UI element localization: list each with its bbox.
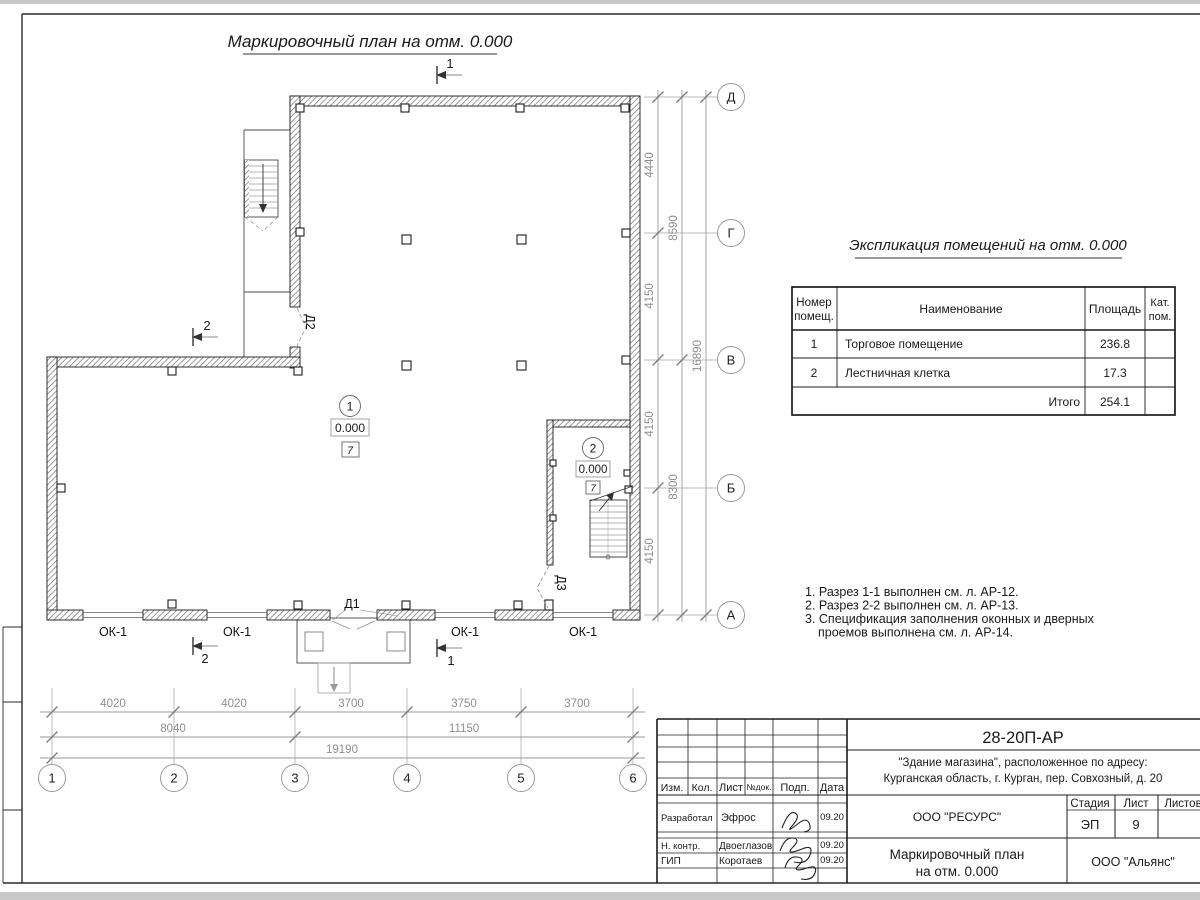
section-mark-1-bottom: 1: [436, 639, 462, 668]
interior-stair: [590, 486, 633, 559]
axis-4: 4: [403, 771, 410, 786]
explication-table: Экспликация помещений на отм. 0.000 Номе…: [792, 237, 1175, 415]
note-3: 3. Спецификация заполнения оконных и две…: [805, 612, 1095, 626]
col-kol: Кол.: [692, 782, 713, 794]
notes: 1. Разрез 1-1 выполнен см. л. АР-12. 2. …: [805, 585, 1095, 640]
name-gip: Коротаев: [719, 856, 762, 867]
dim-b3-1: 19190: [326, 744, 358, 756]
side-stamp-cells: [3, 627, 22, 883]
section-mark-1-top: 1: [436, 56, 462, 84]
dim-b1-1: 4020: [100, 698, 126, 710]
col-num-header: Номер: [796, 297, 831, 309]
section-mark-2-left: 2: [192, 318, 218, 346]
col-ndok: №док.: [747, 782, 772, 792]
axis-bubbles-right: Д Г В Б А: [718, 84, 745, 629]
plan-title-group: Маркировочный план на отм. 0.000: [228, 32, 513, 54]
col-list: Лист: [719, 782, 743, 794]
sheet-name-2: на отм. 0.000: [916, 864, 999, 879]
client-org: ООО "Альянс": [1091, 855, 1175, 869]
dim-r1-2: 4150: [644, 283, 656, 309]
floor-plan: Д1 Д2 Д3 ОК-1 ОК-1 ОК-1 ОК-1 1 0.000 7 2…: [47, 56, 640, 693]
dim-r2-2: 8300: [668, 474, 680, 500]
row-name: Торговое помещение: [845, 337, 963, 351]
door-label-d2: Д2: [303, 314, 317, 329]
window-label: ОК-1: [569, 625, 597, 639]
stage-label: Стадия: [1070, 798, 1109, 810]
axis-b: Б: [727, 481, 736, 496]
window-label: ОК-1: [451, 625, 479, 639]
row-num: 2: [811, 366, 818, 380]
section-label-1: 1: [447, 653, 454, 668]
room1-elevation: 0.000: [335, 421, 365, 435]
stage-value: ЭП: [1081, 817, 1100, 832]
door-labels: Д1 Д2 Д3: [303, 314, 568, 611]
entrance-porch: [297, 618, 410, 693]
room1-floor-type: 7: [347, 445, 354, 457]
total-label: Итого: [1049, 395, 1081, 409]
project-address-2: Курганская область, г. Курган, пер. Совх…: [884, 773, 1163, 785]
note-3-cont: проемов выполнена см. л. АР-14.: [818, 626, 1013, 640]
explication-title: Экспликация помещений на отм. 0.000: [849, 237, 1127, 254]
col-izm: Изм.: [661, 782, 684, 794]
dim-b1-3: 3700: [338, 698, 364, 710]
section-label-1: 1: [446, 56, 453, 71]
door-swings: [297, 308, 549, 629]
axis-a: А: [727, 608, 736, 623]
axis-g: Г: [727, 226, 734, 241]
dim-r1-3: 4150: [644, 411, 656, 437]
explication-total-row: Итого 254.1: [1049, 395, 1131, 409]
room1-number: 1: [347, 400, 354, 414]
dim-b2-1: 8040: [160, 723, 186, 735]
date-gip: 09.20: [820, 855, 844, 866]
date-developed: 09.20: [820, 812, 844, 823]
page-title: Маркировочный план на отм. 0.000: [228, 32, 513, 51]
sheets-label: Листов: [1164, 798, 1200, 810]
doc-number: 28-20П-АР: [982, 729, 1064, 747]
dim-b1-2: 4020: [221, 698, 247, 710]
row-area: 236.8: [1100, 337, 1130, 351]
room-markers: 1 0.000 7 2 0.000 7: [331, 396, 610, 495]
room2-elevation: 0.000: [579, 464, 608, 476]
dim-b2-2: 11150: [449, 723, 479, 735]
note-2: 2. Разрез 2-2 выполнен см. л. АР-13.: [805, 599, 1019, 613]
role-gip: ГИП: [661, 856, 681, 867]
axis-2: 2: [170, 771, 177, 786]
drawing-canvas: Маркировочный план на отм. 0.000: [0, 0, 1200, 900]
door-label-d1: Д1: [344, 597, 359, 611]
sheet-value: 9: [1132, 817, 1139, 832]
entrance-arrow-icon: [330, 684, 338, 692]
dim-r1-4: 4150: [644, 538, 656, 564]
axis-v: В: [727, 353, 736, 368]
title-block-right: 28-20П-АР "Здание магазина", расположенн…: [884, 729, 1200, 879]
axis-bubbles-bottom: 1 2 3 4 5 6: [39, 765, 647, 792]
col-cat-header2: пом.: [1149, 311, 1172, 323]
project-address-1: "Здание магазина", расположенное по адре…: [898, 757, 1147, 769]
walls: [47, 96, 640, 620]
dim-r2-1: 8590: [668, 215, 680, 241]
role-ncontrol: Н. контр.: [661, 841, 700, 852]
name-developed: Эфрос: [721, 812, 756, 824]
col-name-header: Наименование: [919, 302, 1003, 316]
designer-org: ООО "РЕСУРС": [913, 810, 1001, 824]
room2-number: 2: [590, 442, 597, 456]
section-label-2: 2: [201, 651, 208, 666]
section-label-2: 2: [203, 318, 210, 333]
dim-b1-4: 3750: [451, 698, 477, 710]
title-block-signature-rows: Разработал Эфрос 09.20 Н. контр. Двоегла…: [661, 812, 844, 879]
date-ncontrol: 09.20: [820, 840, 844, 851]
col-area-header: Площадь: [1089, 302, 1141, 316]
dim-r3-1: 16890: [692, 340, 704, 372]
window-label: ОК-1: [99, 625, 127, 639]
title-block: Изм. Кол. Лист №док. Подп. Дата Разработ…: [657, 719, 1200, 883]
dimensions-right: 4440 4150 4150 4150 8590 8300 16890 Д Г …: [644, 84, 745, 629]
row-num: 1: [811, 337, 818, 351]
drawing-sheet: Маркировочный план на отм. 0.000: [0, 0, 1200, 900]
total-area: 254.1: [1100, 395, 1130, 409]
sheet-label: Лист: [1124, 798, 1150, 810]
room2-floor-type: 7: [590, 484, 596, 495]
row-name: Лестничная клетка: [845, 366, 950, 380]
col-cat-header: Кат.: [1150, 297, 1169, 309]
col-podp: Подп.: [780, 782, 809, 794]
role-developed: Разработал: [661, 813, 713, 824]
note-1: 1. Разрез 1-1 выполнен см. л. АР-12.: [805, 585, 1019, 599]
axis-6: 6: [629, 771, 636, 786]
axis-1: 1: [48, 771, 55, 786]
col-data: Дата: [820, 782, 845, 794]
name-ncontrol: Двоеглазов: [719, 841, 772, 852]
dim-r1-1: 4440: [644, 152, 656, 178]
row-area: 17.3: [1103, 366, 1127, 380]
signatures: [780, 813, 816, 880]
explication-row-2: 2 Лестничная клетка 17.3: [811, 366, 1127, 380]
col-num-header2: помещ.: [794, 311, 834, 323]
axis-5: 5: [517, 771, 524, 786]
window-label: ОК-1: [223, 625, 251, 639]
exterior-stair: [244, 130, 291, 358]
dim-b1-5: 3700: [564, 698, 590, 710]
axis-d: Д: [727, 90, 736, 105]
section-mark-2-bottom: 2: [192, 637, 218, 666]
sheet-name-1: Маркировочный план: [890, 847, 1025, 862]
explication-row-1: 1 Торговое помещение 236.8: [811, 337, 1131, 351]
door-label-d3: Д3: [554, 575, 568, 590]
dimensions-bottom: 4020 4020 3700 3750 3700 8040 11150 1919…: [39, 688, 647, 792]
axis-3: 3: [291, 771, 298, 786]
